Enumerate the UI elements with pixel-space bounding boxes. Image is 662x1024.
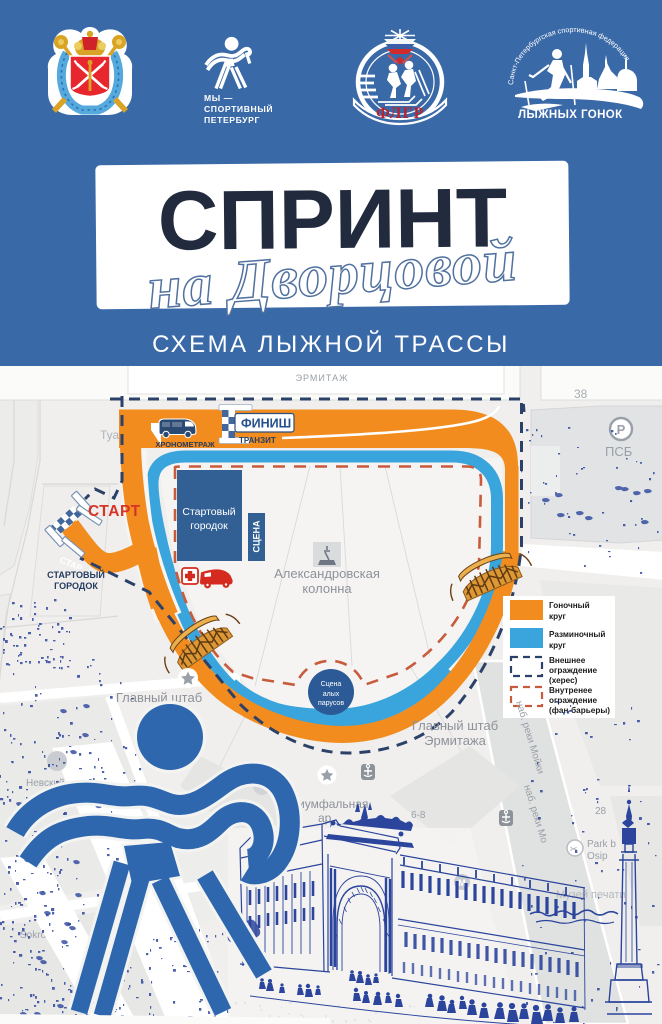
svg-text:28: 28 <box>595 806 607 817</box>
svg-text:Гоночный: Гоночный <box>549 601 590 610</box>
svg-text:P: P <box>617 422 626 437</box>
svg-text:Osip: Osip <box>587 851 608 862</box>
svg-text:СТАРТОВЫЙ: СТАРТОВЫЙ <box>47 569 105 580</box>
svg-text:Главный штаб: Главный штаб <box>412 718 498 733</box>
svg-text:ФЛГР: ФЛГР <box>376 105 424 122</box>
svg-text:Разминочный: Разминочный <box>549 630 605 639</box>
svg-text:ЛЫЖНЫХ ГОНОК: ЛЫЖНЫХ ГОНОК <box>518 109 623 121</box>
svg-text:ПСБ: ПСБ <box>605 444 632 459</box>
svg-text:6-8: 6-8 <box>411 810 426 821</box>
svg-text:ограждение: ограждение <box>549 696 598 705</box>
svg-text:ограждение: ограждение <box>549 666 598 675</box>
svg-text:круг: круг <box>549 612 567 621</box>
svg-text:Внутренее: Внутренее <box>549 686 593 695</box>
svg-text:ПЕТЕРБУРГ: ПЕТЕРБУРГ <box>204 115 260 125</box>
svg-text:алых: алых <box>323 691 340 698</box>
svg-text:СТАРТ: СТАРТ <box>88 503 141 520</box>
svg-text:38: 38 <box>574 387 588 401</box>
svg-text:Стартовый: Стартовый <box>182 506 235 518</box>
svg-text:ФИНИШ: ФИНИШ <box>241 417 291 431</box>
svg-text:Эрмитажа: Эрмитажа <box>424 733 487 748</box>
svg-text:Внешнее: Внешнее <box>549 656 586 665</box>
svg-text:Park b: Park b <box>587 839 616 850</box>
svg-text:городок: городок <box>190 520 228 532</box>
svg-text:Александровская: Александровская <box>274 566 380 581</box>
svg-text:МЫ —: МЫ — <box>204 93 233 103</box>
svg-text:ХРОНОМЕТРАЖ: ХРОНОМЕТРАЖ <box>155 440 215 449</box>
svg-text:ГОРОДОК: ГОРОДОК <box>54 581 98 591</box>
svg-text:(херес): (херес) <box>549 676 578 685</box>
svg-text:(фан-барьеры): (фан-барьеры) <box>549 705 610 715</box>
svg-text:круг: круг <box>549 641 567 650</box>
svg-text:Сцена: Сцена <box>321 681 342 688</box>
svg-text:СЦЕНА: СЦЕНА <box>252 520 262 553</box>
svg-text:колонна: колонна <box>302 581 352 596</box>
svg-text:ТРАНЗИТ: ТРАНЗИТ <box>239 436 276 445</box>
svg-text:СПОРТИВНЫЙ: СПОРТИВНЫЙ <box>204 103 273 114</box>
svg-text:парусов: парусов <box>318 700 344 707</box>
svg-text:ЭРМИТАЖ: ЭРМИТАЖ <box>296 373 349 383</box>
